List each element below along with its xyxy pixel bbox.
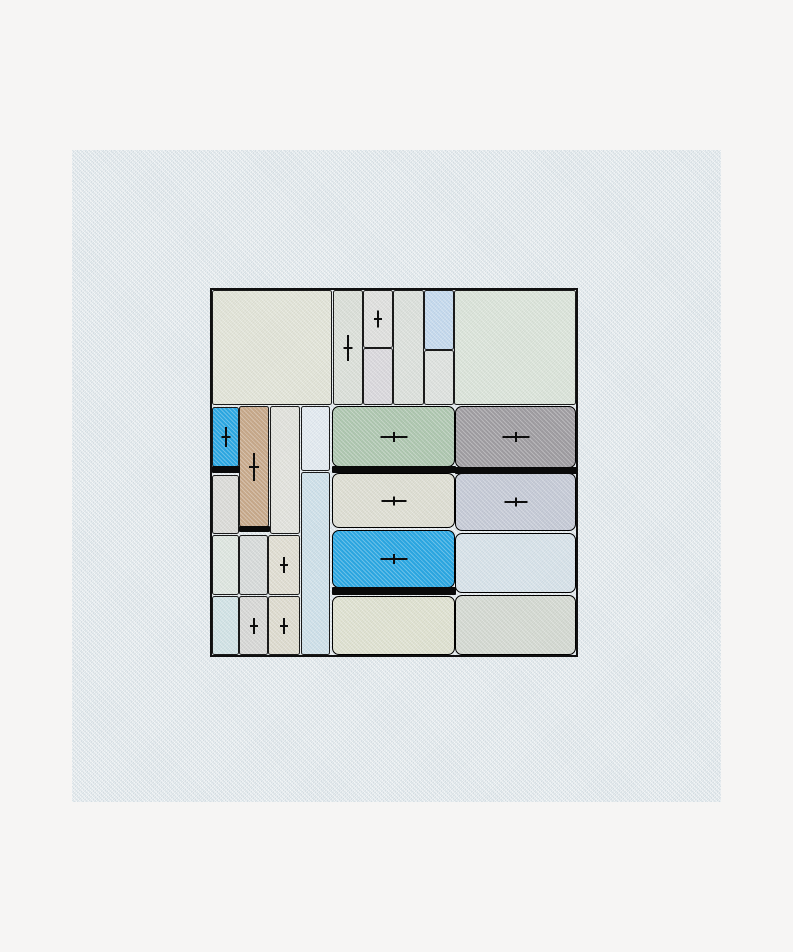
cell-bottom-right[interactable]: [455, 595, 576, 655]
selection-bar: [332, 587, 456, 595]
plus-icon: [364, 291, 392, 347]
plus-icon: [240, 597, 267, 654]
cell-top-strip-3[interactable]: [393, 290, 424, 405]
cell-tan-tall[interactable]: [239, 406, 269, 527]
cell-green-selected[interactable]: [332, 406, 455, 467]
cell-top-left-large[interactable]: [212, 290, 332, 405]
cell-blue-big-selected[interactable]: [332, 530, 455, 588]
cell-bottom-mid[interactable]: [332, 596, 455, 655]
plus-icon: [456, 474, 575, 530]
cell-top-strip-2-lower[interactable]: [363, 348, 393, 405]
plus-icon: [269, 597, 299, 654]
cell-gray-selected[interactable]: [455, 406, 576, 468]
cell-top-right-large[interactable]: [454, 290, 576, 405]
cell-left-strip-4-lower[interactable]: [301, 472, 330, 655]
cell-row3-left-2[interactable]: [239, 535, 268, 595]
cell-bottom-left-2[interactable]: [239, 596, 268, 655]
cell-top-strip-2-upper[interactable]: [363, 290, 393, 348]
cell-row3-left-3[interactable]: [268, 535, 300, 595]
plus-icon: [240, 407, 268, 526]
cell-blue-small[interactable]: [212, 407, 239, 467]
plus-icon: [333, 531, 454, 587]
plus-icon: [456, 407, 575, 467]
cell-top-strip-1[interactable]: [333, 290, 363, 405]
plus-icon: [333, 474, 454, 527]
plus-icon: [334, 291, 362, 404]
selection-bar: [239, 526, 270, 532]
cell-bottom-left-1[interactable]: [212, 596, 239, 655]
plus-icon: [333, 407, 454, 466]
cell-top-strip-4-lower[interactable]: [424, 350, 454, 405]
tile-board: [210, 288, 578, 657]
cell-bottom-left-3[interactable]: [268, 596, 300, 655]
cell-mid-beige[interactable]: [332, 473, 455, 528]
cell-left-strip-3[interactable]: [270, 406, 300, 534]
selection-bar: [455, 467, 577, 474]
cell-row3-left-1[interactable]: [212, 535, 239, 595]
cell-top-strip-4-upper[interactable]: [424, 290, 454, 350]
plus-icon: [269, 536, 299, 594]
cell-left-strip-4-upper[interactable]: [301, 406, 330, 471]
cell-under-blue[interactable]: [212, 475, 239, 534]
cell-right-lightblue[interactable]: [455, 533, 576, 593]
selection-bar: [212, 466, 240, 473]
selection-bar: [332, 466, 456, 473]
plus-icon: [213, 408, 238, 466]
page: [0, 0, 793, 952]
cell-lavender[interactable]: [455, 473, 576, 531]
